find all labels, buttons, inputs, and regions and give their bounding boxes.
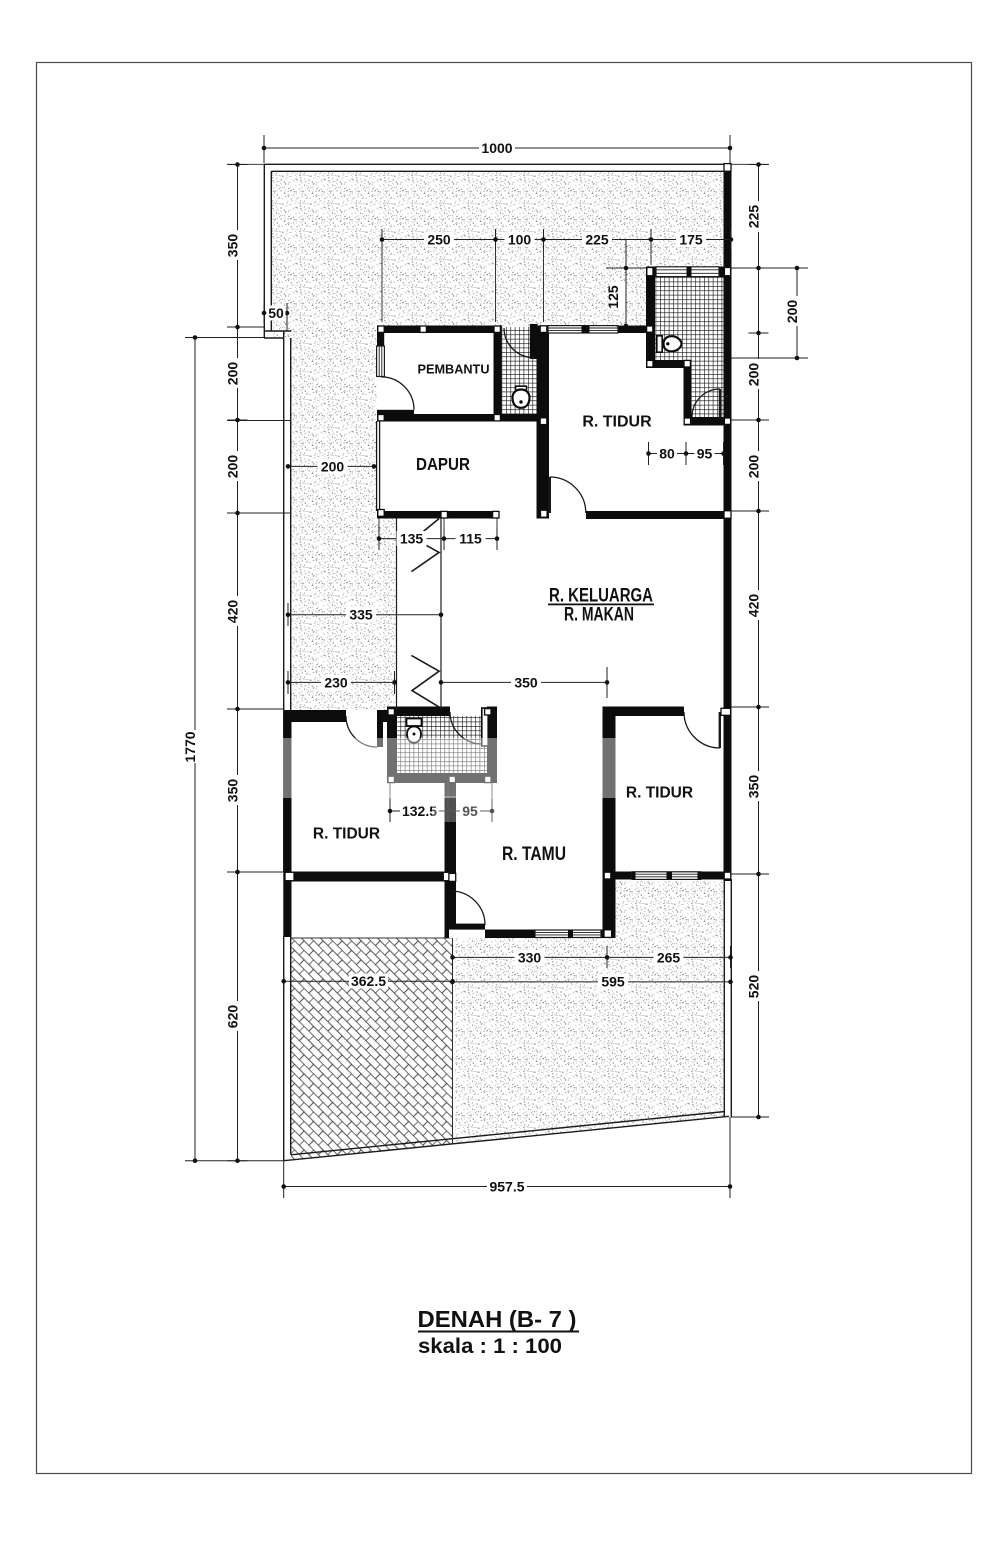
svg-text:230: 230 [324,675,348,691]
svg-text:132.5: 132.5 [402,803,437,819]
svg-text:350: 350 [225,234,241,258]
svg-text:350: 350 [746,775,762,799]
svg-text:175: 175 [679,232,703,248]
svg-text:200: 200 [746,455,762,479]
svg-text:420: 420 [225,600,241,624]
svg-text:95: 95 [697,446,713,462]
svg-text:1000: 1000 [481,140,512,156]
svg-text:115: 115 [459,531,482,547]
svg-text:350: 350 [225,779,241,803]
svg-text:225: 225 [585,232,609,248]
svg-text:skala : 1 : 100: skala : 1 : 100 [418,1335,562,1358]
svg-text:135: 135 [400,531,424,547]
svg-text:420: 420 [746,594,762,618]
svg-text:957.5: 957.5 [489,1179,524,1195]
svg-text:200: 200 [784,300,800,324]
svg-text:225: 225 [746,205,762,229]
svg-text:DAPUR: DAPUR [416,454,470,474]
svg-text:595: 595 [601,974,625,990]
svg-text:50: 50 [268,305,284,321]
svg-text:200: 200 [321,459,345,475]
svg-text:200: 200 [225,362,241,386]
svg-text:250: 250 [427,232,451,248]
svg-text:R. TIDUR: R. TIDUR [582,414,652,431]
svg-text:R. TIDUR: R. TIDUR [313,826,380,843]
svg-text:R. KELUARGA: R. KELUARGA [549,586,653,607]
svg-text:362.5: 362.5 [351,973,386,989]
svg-text:PEMBANTU: PEMBANTU [418,362,490,377]
svg-text:R. TIDUR: R. TIDUR [626,785,693,802]
svg-text:1770: 1770 [182,731,198,762]
svg-text:350: 350 [514,675,538,691]
svg-text:80: 80 [659,446,675,462]
svg-text:265: 265 [657,950,681,966]
svg-text:125: 125 [605,285,621,309]
svg-text:DENAH (B- 7 ): DENAH (B- 7 ) [418,1306,577,1332]
svg-text:R. TAMU: R. TAMU [502,843,566,865]
svg-text:100: 100 [508,232,532,248]
svg-text:200: 200 [225,455,241,479]
svg-text:200: 200 [746,363,762,387]
svg-text:R. MAKAN: R. MAKAN [564,605,634,626]
svg-text:620: 620 [225,1005,241,1029]
svg-text:520: 520 [746,975,762,999]
svg-text:330: 330 [518,950,542,966]
svg-text:335: 335 [349,607,373,623]
